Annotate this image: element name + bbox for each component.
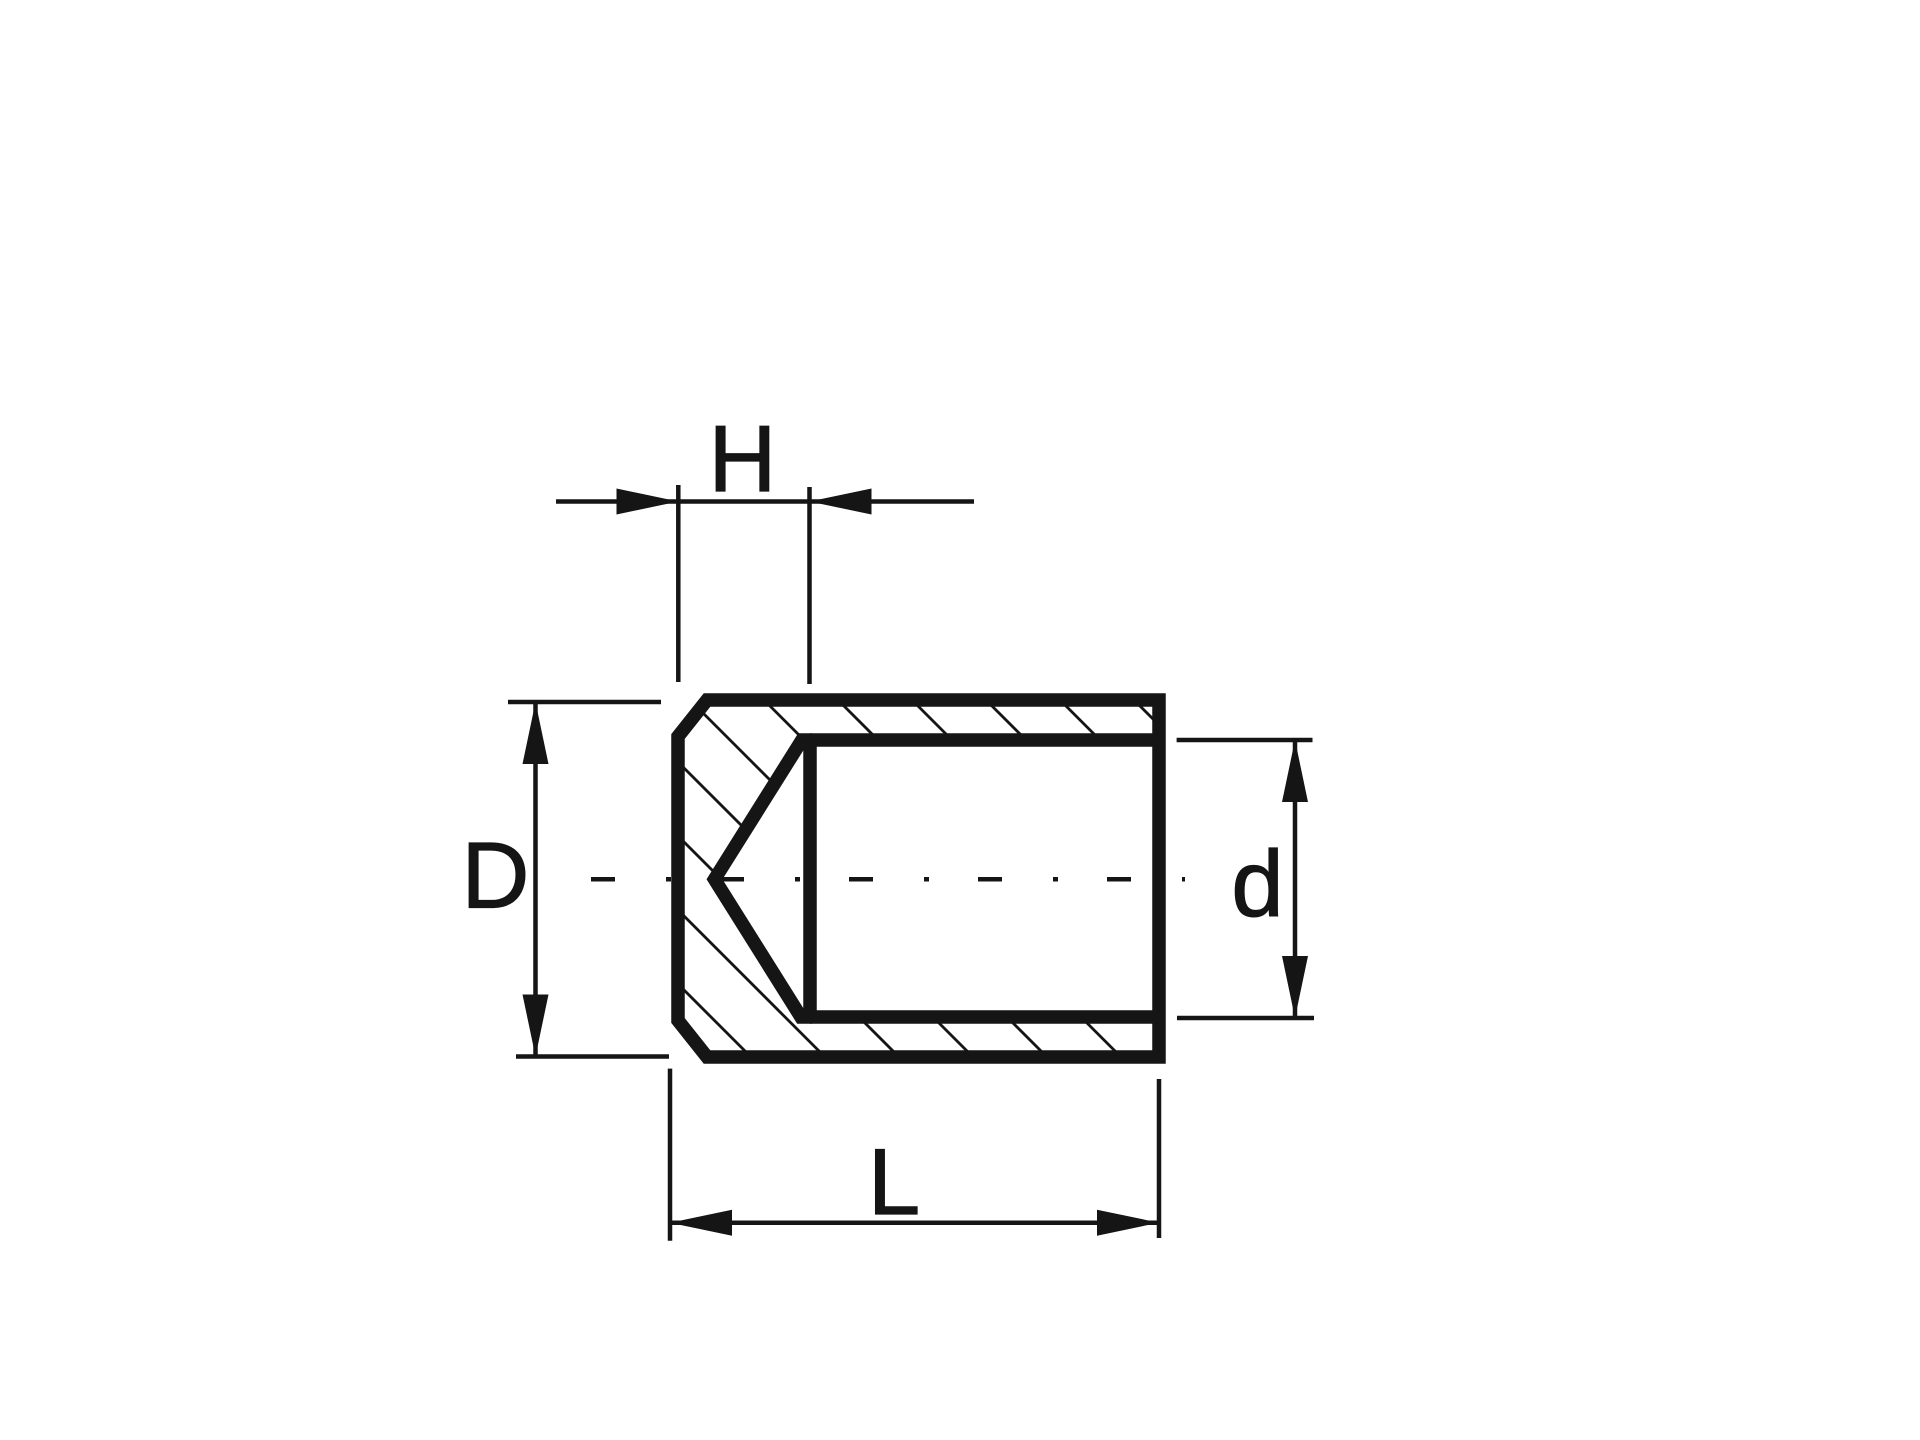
svg-text:d: d [1231, 831, 1283, 936]
svg-text:L: L [868, 1129, 920, 1234]
svg-text:H: H [709, 406, 777, 511]
svg-text:D: D [462, 823, 530, 928]
